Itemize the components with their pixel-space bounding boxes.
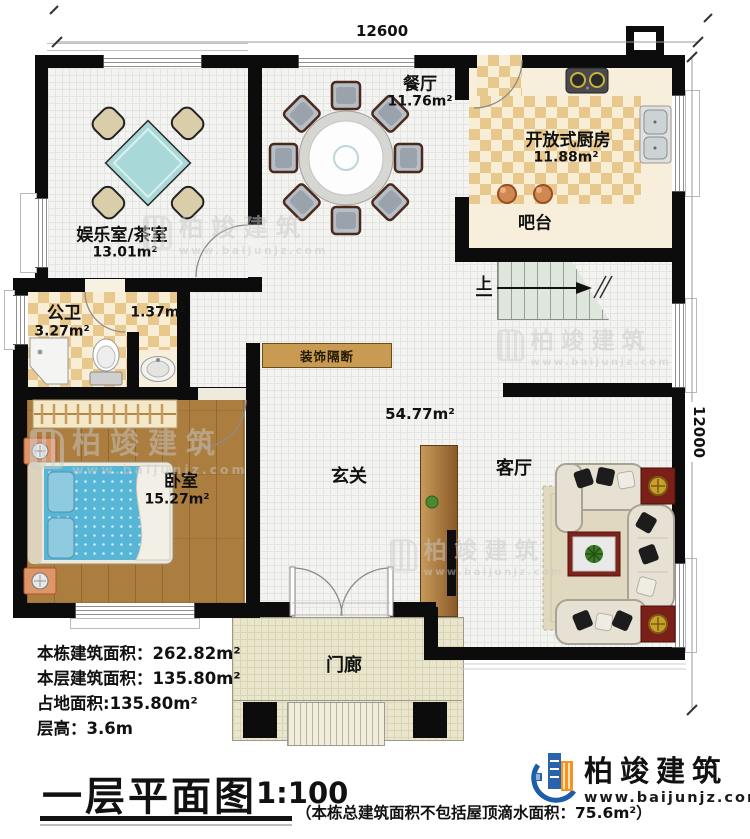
floor-bedroom xyxy=(27,400,245,603)
info-total-area: 本栋建筑面积：262.82m² xyxy=(37,641,241,666)
eaves-line xyxy=(47,43,248,51)
wall xyxy=(522,55,685,68)
window xyxy=(103,55,202,68)
title-underline-thin xyxy=(40,824,292,826)
decorative-partition: 装饰隔断 xyxy=(262,343,392,368)
window-sill xyxy=(685,90,700,197)
label-entertainment: 娱乐室/茶室 xyxy=(76,227,167,246)
window xyxy=(672,563,685,648)
wall xyxy=(13,278,250,292)
window xyxy=(672,303,685,388)
wall xyxy=(250,602,292,617)
dimension-right: 12000 xyxy=(690,402,708,462)
porch-pillar-left xyxy=(243,702,277,738)
plan-title: 一层平面图 xyxy=(42,764,257,822)
label-living: 客厅 xyxy=(496,459,532,479)
dimension-top: 12600 xyxy=(352,22,412,40)
label-bedroom: 卧室 xyxy=(164,473,198,492)
floor-closet-patch xyxy=(139,350,177,387)
label-bath: 公卫 xyxy=(47,305,81,324)
label-dining: 餐厅 xyxy=(403,76,437,95)
wall xyxy=(424,647,685,660)
label-kitchen-area: 11.88m² xyxy=(533,150,598,165)
wall xyxy=(248,277,262,292)
label-hall-area: 54.77m² xyxy=(385,406,455,423)
label-porch: 门廊 xyxy=(326,656,362,676)
porch-step-line xyxy=(232,700,462,701)
wall xyxy=(13,390,27,618)
info-floor-height: 层高：3.6m xyxy=(37,716,241,741)
wall xyxy=(35,55,48,198)
partition-label: 装饰隔断 xyxy=(300,346,354,365)
wall xyxy=(455,248,685,262)
wall xyxy=(47,55,105,68)
company-logo: 柏竣建筑 www.baijunjz.com xyxy=(528,748,750,806)
info-floor-area: 本层建筑面积：135.80m² xyxy=(37,666,241,691)
company-logo-icon xyxy=(528,749,578,805)
window xyxy=(75,603,195,618)
window xyxy=(13,295,28,345)
label-foyer: 玄关 xyxy=(331,467,367,487)
label-kitchen: 开放式厨房 xyxy=(526,132,611,151)
tv-cabinet xyxy=(420,445,458,617)
label-entertainment-area: 13.01m² xyxy=(92,245,157,260)
plan-scale: 1:100 xyxy=(256,776,348,810)
wall xyxy=(503,383,685,397)
door-opening xyxy=(248,225,262,277)
company-name: 柏竣建筑 xyxy=(584,748,750,790)
exterior-step-lines xyxy=(460,664,686,669)
title-underline xyxy=(40,816,292,821)
window-sill xyxy=(685,298,697,393)
door-opening xyxy=(85,279,125,292)
company-website: www.baijunjz.com xyxy=(584,790,750,806)
wall xyxy=(248,55,262,225)
wall xyxy=(246,343,260,618)
door-opening xyxy=(198,388,246,400)
label-dining-area: 11.76m² xyxy=(387,94,452,109)
building-info: 本栋建筑面积：262.82m² 本层建筑面积：135.80m² 占地面积:135… xyxy=(37,641,241,741)
porch-steps xyxy=(287,702,385,746)
window-sill xyxy=(70,618,200,629)
label-bedroom-area: 15.27m² xyxy=(144,492,209,507)
window xyxy=(672,95,685,192)
window xyxy=(298,55,415,68)
window xyxy=(35,198,48,268)
chimney-flue-inner xyxy=(634,32,656,50)
label-bar: 吧台 xyxy=(518,215,552,234)
info-footprint-area: 占地面积:135.80m² xyxy=(37,691,241,716)
porch-pillar-right xyxy=(413,702,447,738)
wall xyxy=(455,55,469,100)
label-bath-area: 3.27m² xyxy=(34,324,89,339)
window-sill xyxy=(685,558,697,653)
label-stairs-up: 上 xyxy=(476,275,492,293)
label-closet-area: 1.37m² xyxy=(130,305,185,320)
kitchen-door-threshold xyxy=(477,55,522,96)
